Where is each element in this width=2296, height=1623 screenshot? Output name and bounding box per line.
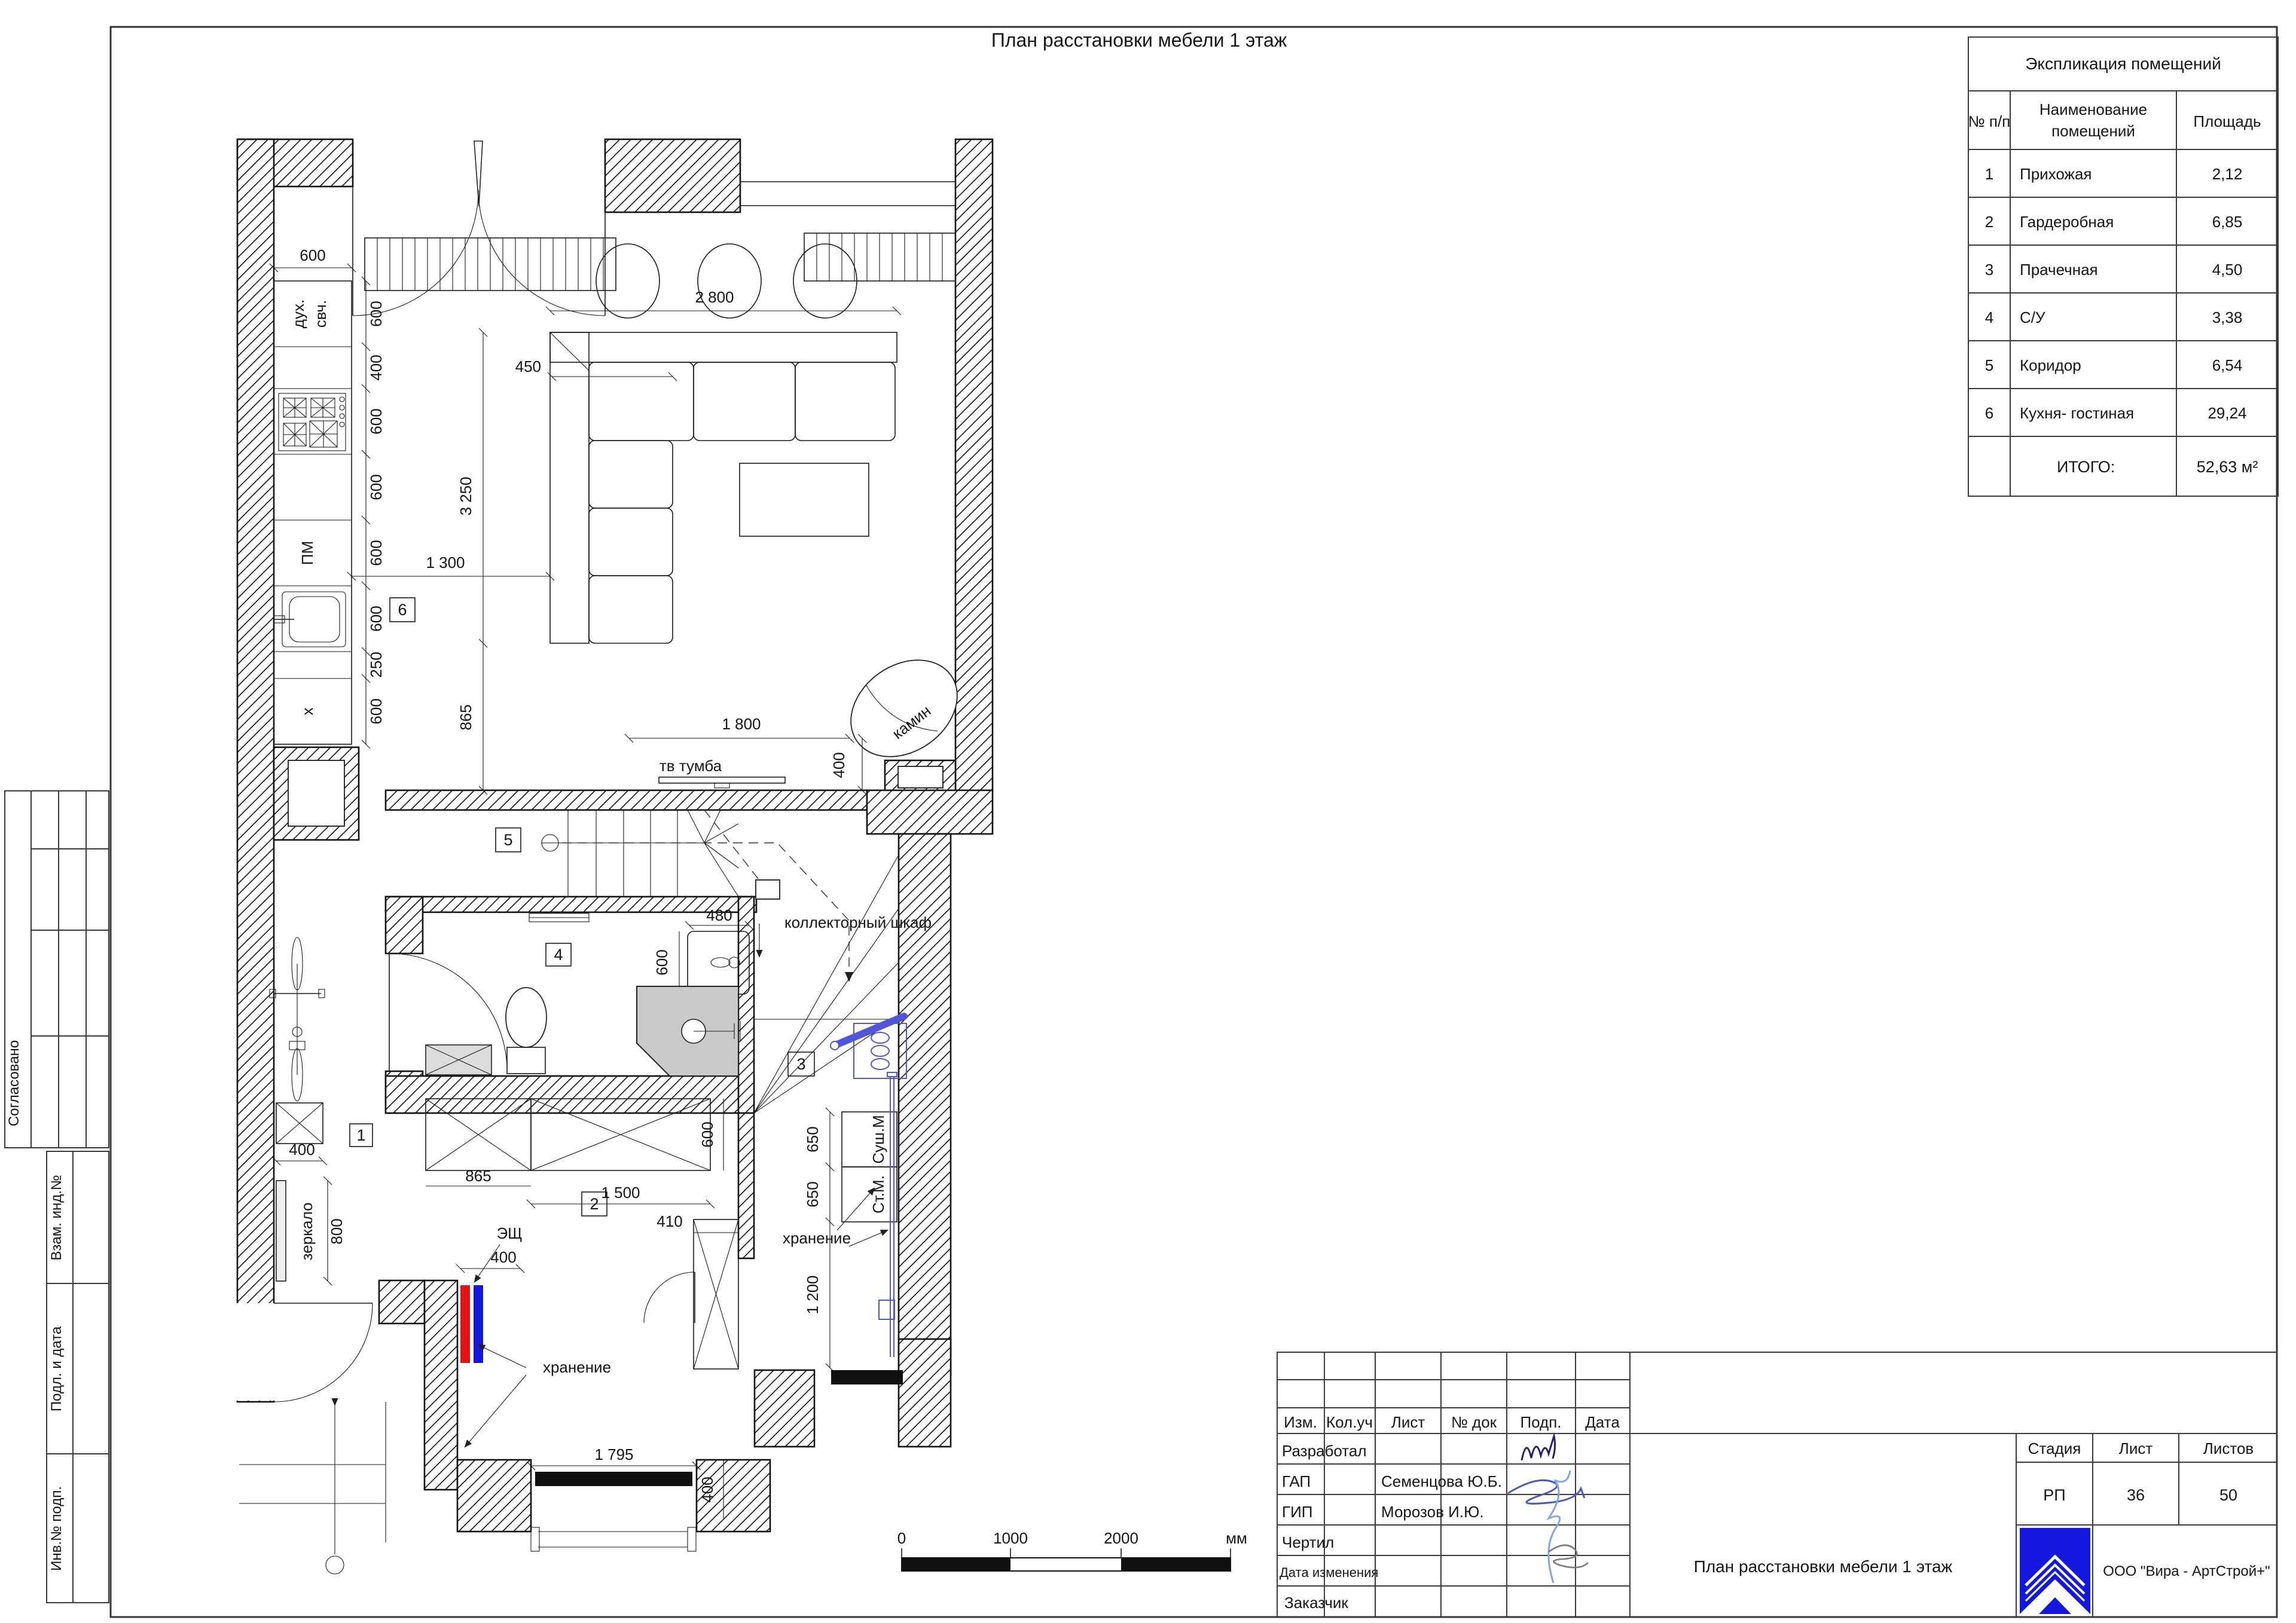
company-name: ООО "Вира - АртСтрой+" — [2103, 1563, 2270, 1579]
dim-865: 865 — [457, 704, 475, 730]
dim-800-mirror: 800 — [328, 1218, 346, 1244]
dim-600: 600 — [367, 540, 385, 566]
row-num: 2 — [1985, 213, 1993, 231]
row-name: Кухня- гостиная — [2020, 404, 2134, 422]
table-row: 6 Кухня- гостиная 29,24 — [1985, 404, 2247, 422]
walls — [236, 139, 993, 1532]
row-customer: Заказчик — [1284, 1594, 1348, 1612]
electric-panel: ЭЩ 400 — [456, 1224, 524, 1363]
dim-400-mirror: 400 — [289, 1141, 315, 1159]
row-area: 29,24 — [2208, 404, 2246, 422]
row-name: Прачечная — [2020, 261, 2098, 279]
row-gip-name: Морозов И.Ю. — [1381, 1503, 1484, 1521]
dim-650a: 650 — [804, 1126, 822, 1152]
col-izm: Изм. — [1284, 1413, 1317, 1431]
mirror — [276, 1181, 286, 1281]
dim-400-panel: 400 — [490, 1248, 516, 1266]
dim-400: 400 — [367, 354, 385, 380]
room-tag-5: 5 — [496, 828, 521, 852]
page-title: План расстановки мебели 1 этаж — [991, 29, 1287, 51]
list-label: Лист — [2119, 1439, 2153, 1457]
scale-2000: 2000 — [1104, 1529, 1138, 1547]
fireplace: камин — [832, 640, 976, 777]
sink-icon — [274, 592, 346, 647]
dim-tv-depth: 400 — [830, 752, 848, 778]
row-developer: Разработал — [1282, 1442, 1367, 1460]
doc-title: План расстановки мебели 1 этаж — [1694, 1557, 1953, 1576]
coffee-table — [740, 463, 869, 536]
dryer: Суш.М — [842, 1112, 897, 1167]
row-draftsman: Чертил — [1282, 1533, 1334, 1551]
collector-label: коллекторный шкаф — [784, 913, 932, 931]
dim-tv-width: 1 800 — [722, 715, 761, 733]
table-row: 5 Коридор 6,54 — [1985, 356, 2243, 374]
row-area: 3,38 — [2212, 308, 2243, 326]
col-data: Дата — [1585, 1413, 1620, 1431]
room-tag-4: 4 — [546, 943, 571, 966]
room-tag-3: 3 — [788, 1052, 814, 1076]
dim-sofa-length: 3 250 — [457, 476, 475, 515]
col-podp: Подп. — [1520, 1413, 1561, 1431]
ironing-board — [831, 1016, 904, 1050]
dim-600-storage: 600 — [698, 1121, 716, 1147]
bicycle-icon — [270, 937, 325, 1101]
company-logo — [2020, 1528, 2090, 1614]
row-area: 6,54 — [2212, 356, 2243, 374]
tag-number: 1 — [356, 1126, 365, 1144]
tag-number: 5 — [503, 831, 512, 849]
stage-label: Стадия — [2028, 1439, 2081, 1457]
explication-title: Экспликация помещений — [2025, 54, 2221, 73]
row-name: С/У — [2020, 308, 2045, 326]
listov-value: 50 — [2219, 1486, 2237, 1504]
table-row: 3 Прачечная 4,50 — [1985, 261, 2243, 279]
tag-number: 6 — [398, 601, 407, 619]
freezer-label: x — [298, 708, 316, 716]
list-value: 36 — [2127, 1486, 2145, 1504]
title-block: Изм. Кол.уч Лист № док Подп. Дата Разраб… — [1277, 1352, 2277, 1617]
laundry-room: 3 Суш.М Ст.М. 650 650 1 200 — [783, 1016, 906, 1384]
wardrobe-door-arc — [644, 1272, 695, 1323]
dim-sink-depth: 600 — [653, 949, 671, 975]
dim-250: 250 — [367, 652, 385, 677]
row-area: 4,50 — [2212, 261, 2243, 279]
listov-label: Листов — [2203, 1439, 2254, 1457]
floor-plan: дух. свч. ПМ x 600 400 600 600 600 600 2… — [236, 139, 993, 1574]
label-vzam: Взам. инд.№ — [48, 1175, 65, 1260]
tv-stand-label: тв тумба — [660, 757, 722, 775]
label-podl: Подл. и дата — [48, 1326, 65, 1411]
stage-value: РП — [2043, 1486, 2065, 1504]
washer: Ст.М. — [842, 1167, 897, 1222]
tag-number: 4 — [554, 946, 563, 964]
door-leaf-tip — [474, 141, 483, 206]
total-value: 52,63 м² — [2197, 458, 2258, 476]
dim-sofa-width: 2 800 — [695, 288, 734, 306]
dim-600: 600 — [367, 474, 385, 500]
dim-1200: 1 200 — [804, 1275, 822, 1314]
dim-400-bench: 400 — [698, 1477, 716, 1502]
col-name-1: Наименование — [2039, 100, 2147, 118]
drawing-sheet: { "sheet": { "title": "План расстановки … — [0, 0, 2296, 1623]
dim-410: 410 — [657, 1212, 682, 1230]
row-gap-name: Семенцова Ю.Б. — [1381, 1472, 1502, 1490]
radiator — [365, 238, 616, 291]
row-name: Коридор — [2020, 356, 2081, 374]
scale-bar: 0 1000 2000 мм — [897, 1529, 1247, 1571]
entry-door-arc — [274, 1303, 373, 1402]
dim-600: 600 — [367, 606, 385, 631]
storage-label-laundry: хранение — [783, 1229, 851, 1247]
total-label: ИТОГО: — [2057, 458, 2115, 476]
row-change-date: Дата изменения — [1280, 1565, 1378, 1580]
dim-600: 600 — [367, 698, 385, 724]
label-inv: Инв.№ подп. — [48, 1486, 65, 1571]
room-tag-6: 6 — [390, 598, 415, 622]
row-gap: ГАП — [1282, 1472, 1311, 1490]
hob-icon — [279, 393, 346, 451]
microwave-label: свч. — [312, 300, 329, 328]
col-area: Площадь — [2193, 112, 2261, 130]
row-name: Прихожая — [2020, 165, 2092, 183]
col-list: Лист — [1391, 1413, 1425, 1431]
dim-600: 600 — [367, 408, 385, 434]
entry-double-door — [353, 141, 605, 316]
dim-sofa-depth: 450 — [515, 357, 541, 375]
margin-stamp-columns: Взам. инд.№ Подл. и дата Инв.№ подп. — [47, 1151, 109, 1603]
col-kol: Кол.уч — [1326, 1413, 1373, 1431]
dim-1300: 1 300 — [426, 554, 465, 571]
row-area: 2,12 — [2212, 165, 2243, 183]
dim-600: 600 — [367, 301, 385, 326]
row-num: 4 — [1985, 308, 1993, 326]
label-approved: Согласовано — [6, 1040, 22, 1126]
washer-label: Ст.М. — [869, 1175, 887, 1214]
sheet-canvas: План расстановки мебели 1 этаж Согласова… — [0, 0, 2296, 1623]
scale-0: 0 — [897, 1529, 906, 1547]
dim-1500: 1 500 — [601, 1184, 640, 1202]
mirror-label: зеркало — [298, 1203, 316, 1261]
window — [740, 182, 955, 206]
oven-label: дух. — [289, 299, 307, 328]
row-gip: ГИП — [1282, 1503, 1312, 1521]
radiator — [804, 233, 955, 281]
tv-zone: 1 800 тв тумба 400 — [625, 715, 866, 794]
margin-stamp-approved: Согласовано — [5, 791, 109, 1148]
row-area: 6,85 — [2212, 213, 2243, 231]
dim-1795: 1 795 — [594, 1445, 633, 1463]
laundry-bench — [831, 1370, 903, 1384]
room-tag-1: 1 — [350, 1124, 373, 1147]
toilet — [506, 988, 546, 1047]
bathroom: 4 480 600 — [389, 906, 753, 1076]
sofa: 2 800 450 3 250 865 — [457, 288, 901, 794]
bench — [535, 1472, 692, 1486]
scale-1000: 1000 — [993, 1529, 1028, 1547]
dim-kitchen-depth: 600 — [300, 246, 325, 264]
col-name-2: помещений — [2051, 122, 2135, 140]
col-doc: № док — [1451, 1413, 1497, 1431]
table-row: 1 Прихожая 2,12 — [1985, 165, 2243, 183]
dim-sink-width: 480 — [706, 906, 732, 924]
panel-label: ЭЩ — [496, 1224, 522, 1242]
scale-unit: мм — [1226, 1529, 1247, 1547]
storage-label-wardrobe: хранение — [543, 1358, 611, 1376]
row-num: 3 — [1985, 261, 1993, 279]
kitchen-units: дух. свч. ПМ x 600 400 600 600 600 600 2… — [270, 246, 554, 748]
explication-table: Экспликация помещений № п/п Наименование… — [1968, 37, 2278, 496]
dishwasher-label: ПМ — [298, 541, 316, 565]
table-row: 2 Гардеробная 6,85 — [1985, 213, 2243, 231]
dryer-label: Суш.М — [869, 1115, 887, 1164]
col-num: № п/п — [1968, 112, 2011, 130]
row-num: 1 — [1985, 165, 1993, 183]
dim-650b: 650 — [804, 1181, 822, 1207]
dim-865-storage: 865 — [465, 1167, 491, 1185]
table-row: 4 С/У 3,38 — [1985, 308, 2243, 326]
row-name: Гардеробная — [2020, 213, 2114, 231]
row-num: 6 — [1985, 404, 1993, 422]
row-num: 5 — [1985, 356, 1993, 374]
tag-number: 3 — [796, 1055, 805, 1073]
